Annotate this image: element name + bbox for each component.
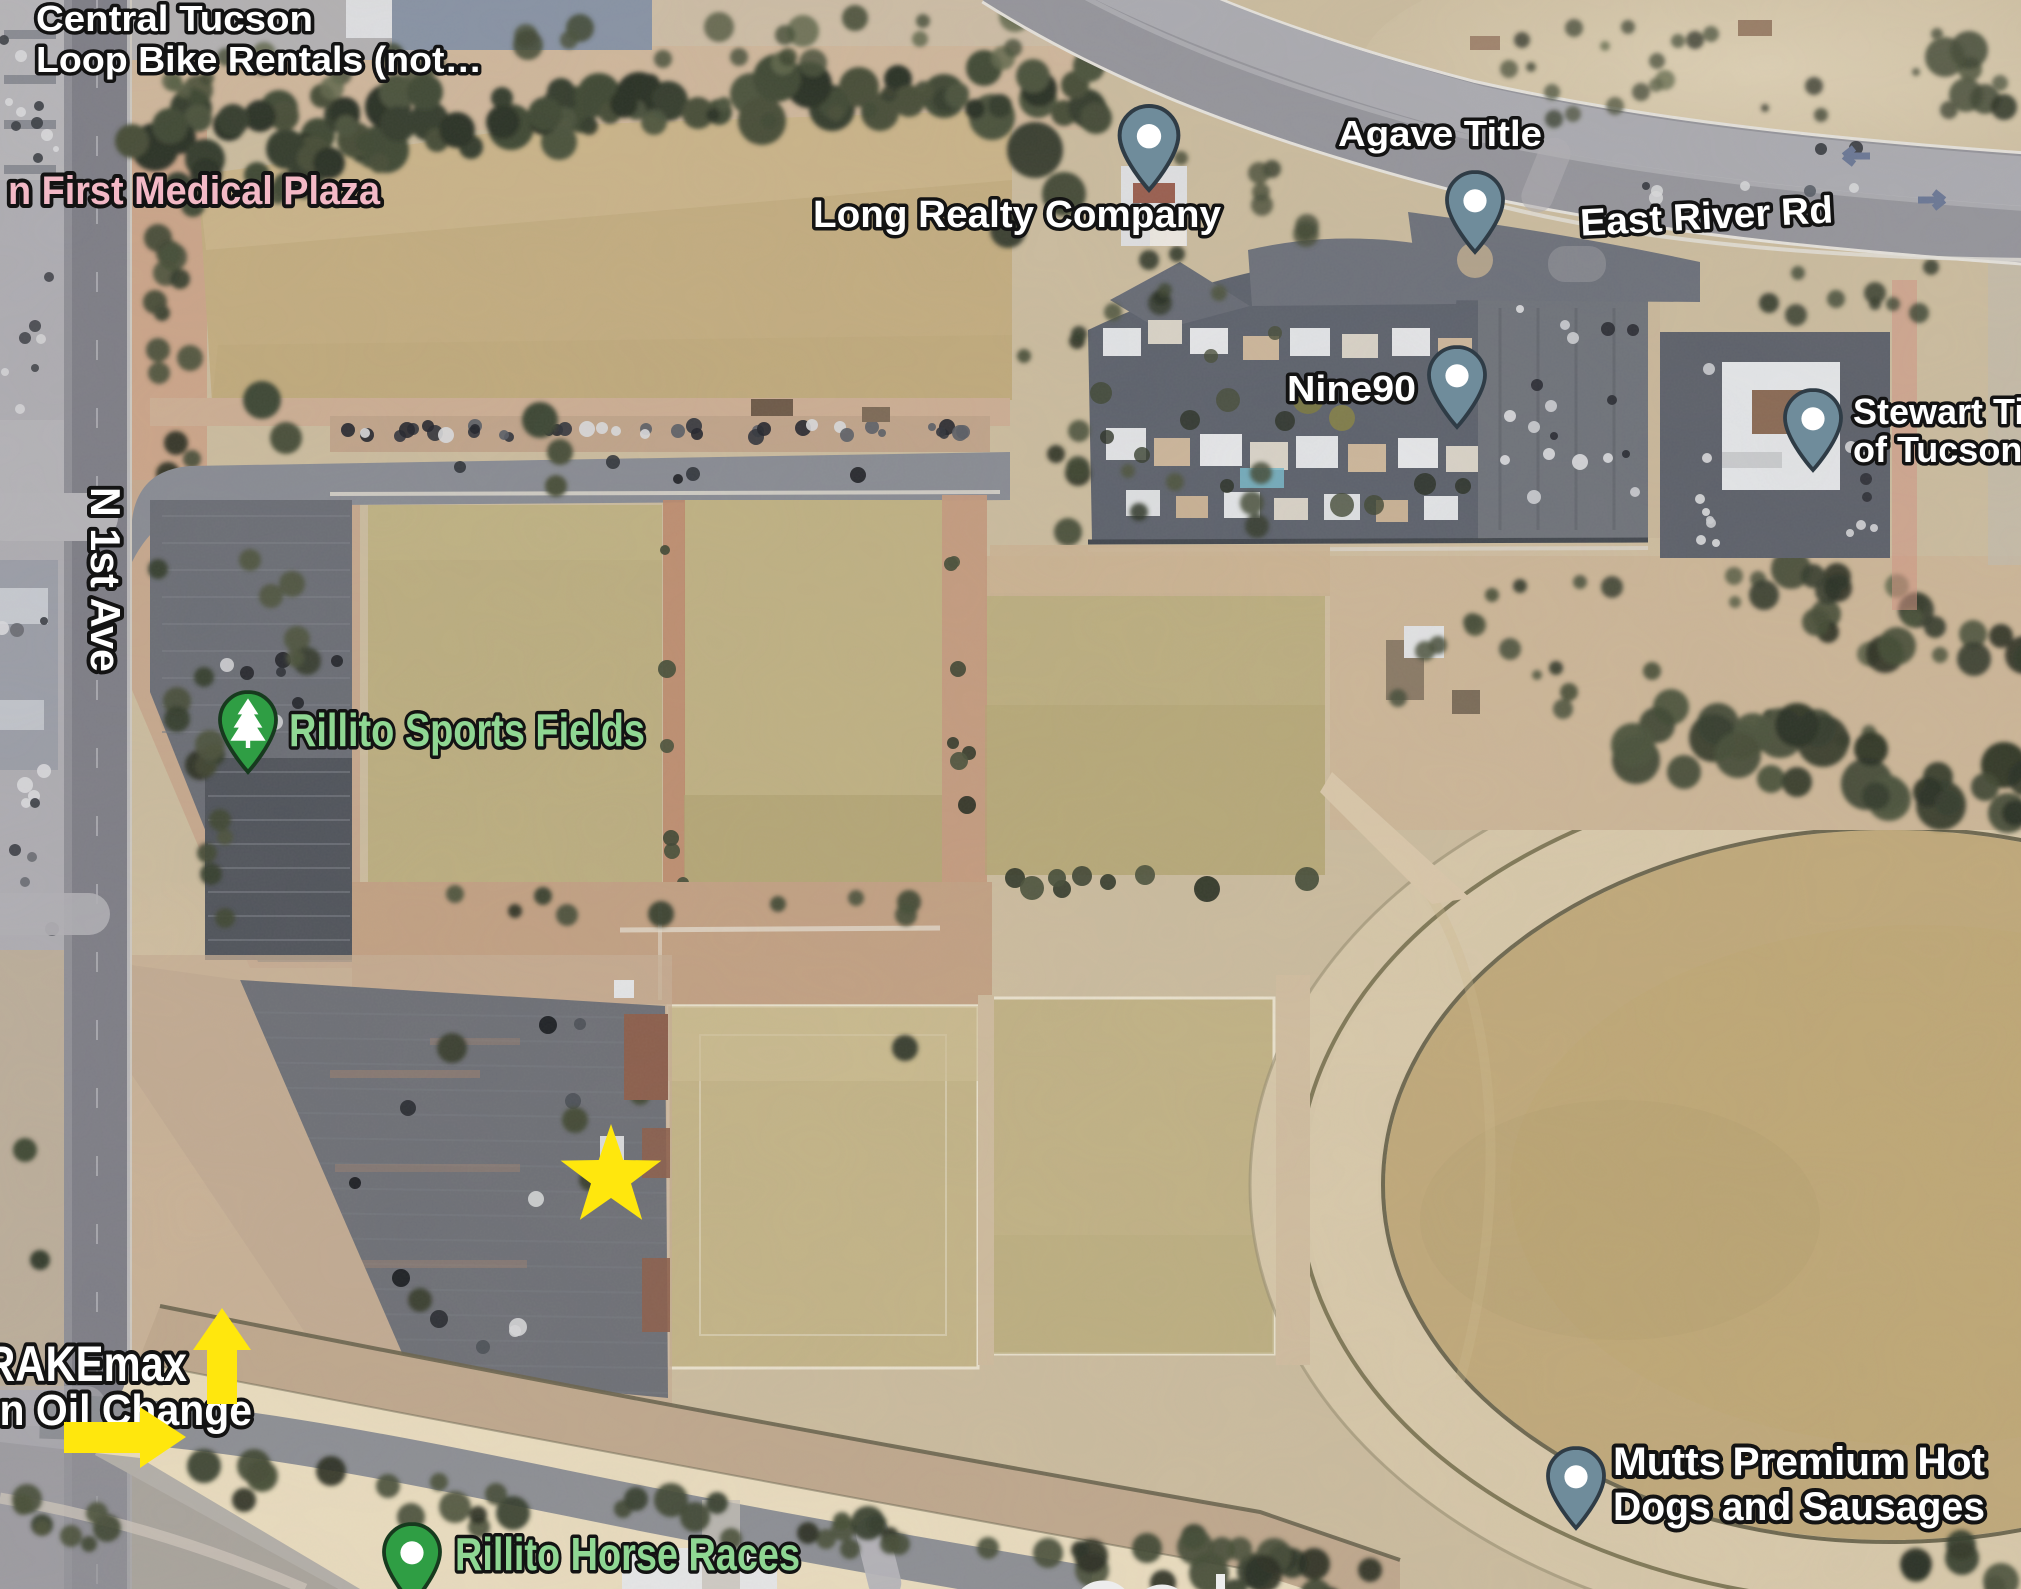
svg-text:Loop Bike Rentals (not…: Loop Bike Rentals (not… (36, 39, 482, 80)
svg-text:Rillito Sports Fields: Rillito Sports Fields (289, 704, 645, 756)
svg-text:Central Tucson: Central Tucson (36, 0, 313, 39)
svg-text:Agave Title: Agave Title (1338, 113, 1542, 154)
svg-text:n First Medical Plaza: n First Medical Plaza (8, 169, 381, 213)
svg-text:Stewart Ti: Stewart Ti (1853, 391, 2021, 432)
svg-text:Long Realty Company: Long Realty Company (813, 194, 1221, 236)
svg-text:Dogs and Sausages: Dogs and Sausages (1613, 1485, 1985, 1529)
svg-text:Nine90: Nine90 (1287, 368, 1416, 409)
svg-text:BRAKEmax: BRAKEmax (0, 1336, 187, 1392)
svg-text:Mutts Premium Hot: Mutts Premium Hot (1613, 1440, 1985, 1484)
svg-text:of Tucson: of Tucson (1853, 429, 2021, 470)
svg-text:Rillito Horse Races: Rillito Horse Races (455, 1528, 800, 1580)
svg-text:N 1st Ave: N 1st Ave (82, 487, 129, 672)
